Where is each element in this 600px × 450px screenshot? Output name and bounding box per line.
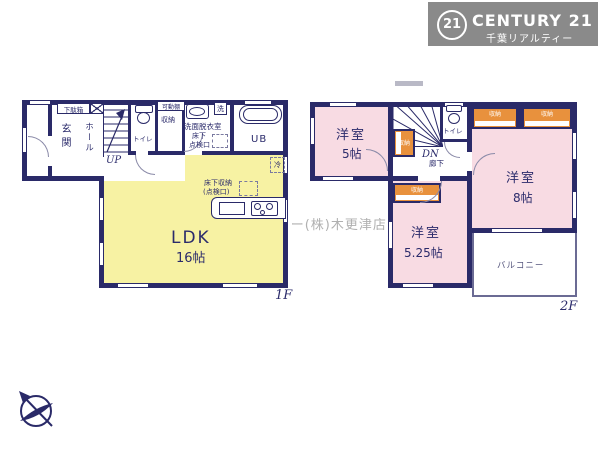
room-label-genkan: 玄関 bbox=[59, 123, 69, 151]
washer-label: 洗 bbox=[214, 102, 227, 115]
stairs-up-icon bbox=[103, 104, 128, 156]
sink-bowl-icon bbox=[189, 107, 205, 116]
wall bbox=[128, 103, 131, 154]
balcony-sliding-door bbox=[492, 228, 542, 233]
stove-burner-icon bbox=[260, 210, 265, 215]
wall bbox=[158, 151, 185, 155]
room-label-ldk: LDK bbox=[171, 230, 211, 247]
floor-storage-label-1: 床下収納 bbox=[204, 180, 232, 187]
window bbox=[118, 283, 148, 288]
closet-door-strip bbox=[525, 121, 569, 126]
window bbox=[223, 283, 257, 288]
getabako-label: 下駄箱 bbox=[57, 103, 90, 114]
wall bbox=[48, 166, 52, 176]
inspection-hatch-box bbox=[212, 134, 228, 148]
washer-text: 洗 bbox=[217, 104, 224, 114]
door-arc bbox=[135, 155, 155, 175]
kadodana-label: 可動棚 bbox=[157, 101, 185, 111]
underfloor-label-2: 点検口 bbox=[189, 142, 210, 149]
closet-label: 収納 bbox=[524, 112, 570, 118]
floor-label-2f: 2F bbox=[560, 300, 577, 313]
fridge-text: 冷 bbox=[274, 160, 281, 170]
room-label-hallway: 廊下 bbox=[429, 160, 444, 168]
door-arc bbox=[28, 136, 49, 157]
fridge-space-box: 冷 bbox=[270, 157, 285, 173]
window bbox=[22, 128, 27, 152]
vent-tab bbox=[395, 81, 423, 86]
window bbox=[403, 283, 433, 288]
window bbox=[310, 118, 315, 144]
toilet-bowl-icon bbox=[448, 113, 460, 124]
century21-badge-icon: 21 bbox=[437, 10, 467, 40]
wall bbox=[202, 151, 288, 155]
getabako-text: 下駄箱 bbox=[64, 104, 84, 114]
room-fill-ldk-upper bbox=[185, 155, 283, 185]
closet-room8-left: 収納 bbox=[472, 107, 518, 129]
kitchen-sink-icon bbox=[219, 202, 245, 215]
room-label-ub: UB bbox=[251, 135, 267, 145]
closet-stairs: 収納 bbox=[393, 129, 415, 157]
room-label-balcony: バルコニー bbox=[497, 262, 544, 271]
stove-burner-icon bbox=[266, 203, 273, 210]
window bbox=[572, 133, 577, 159]
room-label-room8: 洋室 bbox=[506, 172, 536, 185]
window bbox=[323, 176, 353, 181]
underfloor-label-1: 床下 bbox=[192, 133, 206, 140]
room-label-hall: ホール bbox=[84, 122, 93, 154]
wall bbox=[48, 105, 52, 136]
wall bbox=[230, 103, 234, 155]
room-label-toilet-1f: トイレ bbox=[133, 136, 153, 143]
wall bbox=[393, 176, 418, 181]
shoebox-x-icon bbox=[90, 103, 104, 114]
window bbox=[99, 243, 104, 265]
bathtub-inner-icon bbox=[243, 108, 278, 121]
floor-label-1f: 1F bbox=[275, 289, 292, 302]
compass-north-icon bbox=[12, 382, 58, 432]
closet-label-1f: 収納 bbox=[161, 117, 175, 124]
room-size-ldk: 16帖 bbox=[176, 252, 206, 265]
century21-logo: 21 CENTURY 21 千葉リアルティー bbox=[428, 2, 598, 46]
closet-door-strip bbox=[475, 121, 515, 126]
toilet-bowl-icon bbox=[137, 112, 150, 124]
window bbox=[99, 198, 104, 220]
kadodana-text: 可動棚 bbox=[162, 102, 180, 111]
floor-storage-label-2: (点検口) bbox=[203, 189, 229, 196]
wall bbox=[283, 100, 288, 288]
toilet-tank-icon bbox=[446, 105, 462, 112]
closet-label: 収納 bbox=[395, 141, 413, 147]
room-size-room8: 8帖 bbox=[513, 192, 533, 204]
stairs-up-label: UP bbox=[106, 156, 121, 166]
door-arc bbox=[444, 142, 460, 158]
room-size-room5: 5帖 bbox=[342, 148, 362, 160]
wall bbox=[22, 176, 104, 181]
closet-room8-right: 収納 bbox=[522, 107, 572, 129]
room-label-washroom: 洗面脱衣室 bbox=[184, 123, 222, 131]
window bbox=[330, 102, 356, 107]
window bbox=[572, 192, 577, 218]
room-size-room525: 5.25帖 bbox=[404, 247, 443, 259]
logo-subtitle-text: 千葉リアルティー bbox=[486, 30, 573, 45]
stove-burner-icon bbox=[254, 203, 261, 210]
room-label-room5: 洋室 bbox=[336, 129, 366, 142]
logo-brand-text: CENTURY 21 bbox=[472, 11, 593, 30]
wall bbox=[99, 176, 104, 288]
window bbox=[388, 222, 393, 248]
room-label-toilet-2f: トイレ bbox=[443, 128, 463, 135]
floor-storage-box bbox=[239, 181, 258, 196]
closet-label: 収納 bbox=[474, 112, 516, 118]
window bbox=[30, 100, 50, 105]
floorplan-page: 21 CENTURY 21 千葉リアルティー C21千葉リアルティー(株)木更津… bbox=[0, 0, 600, 450]
room-label-room525: 洋室 bbox=[411, 227, 441, 240]
